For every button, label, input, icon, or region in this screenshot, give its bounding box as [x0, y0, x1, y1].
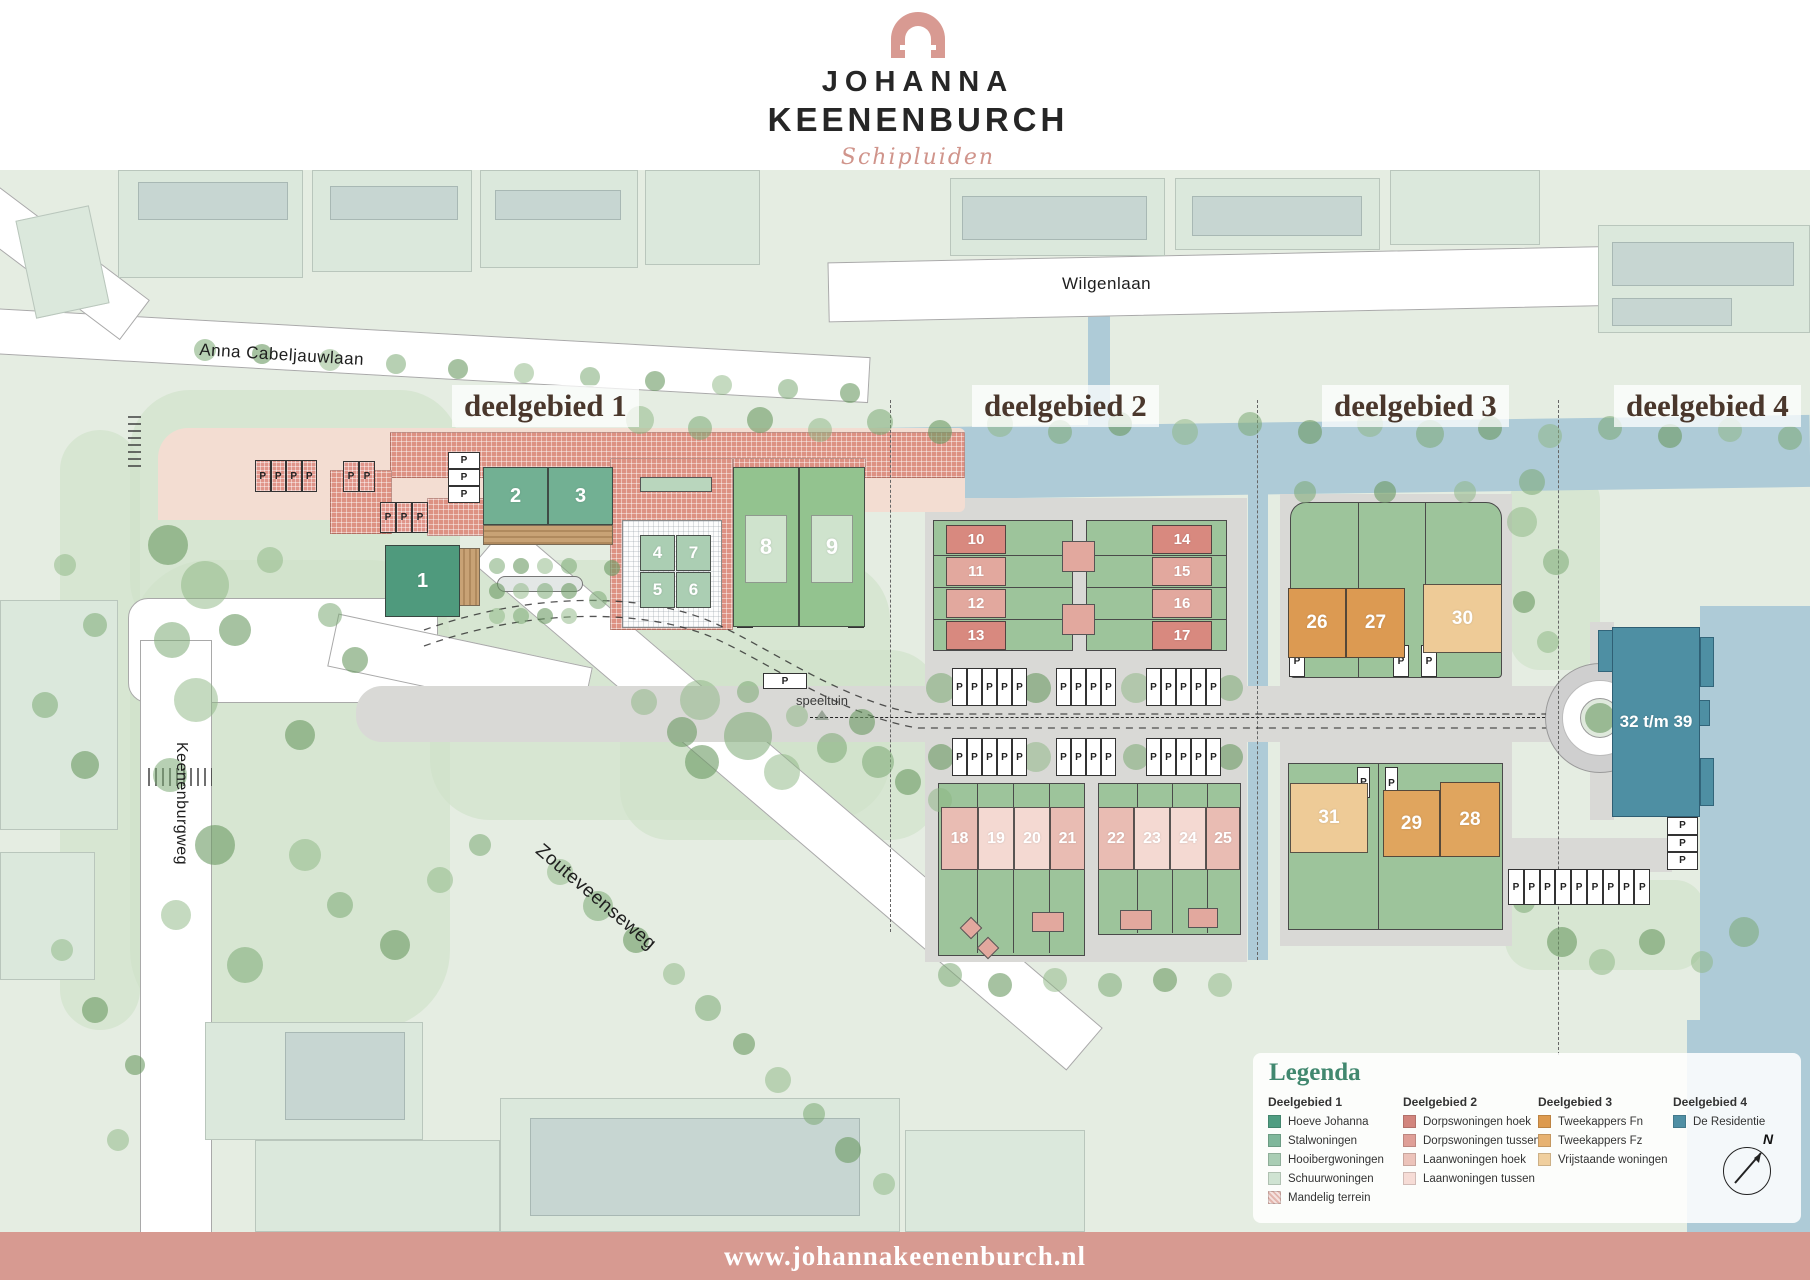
arch-icon [891, 8, 945, 58]
brand-subtitle: Schipluiden [668, 145, 1168, 170]
legend-item-label: Hooibergwoningen [1288, 1154, 1384, 1166]
legend-group-title: Deelgebied 4 [1673, 1095, 1765, 1109]
speeltuin-label: speeltuin [796, 693, 848, 720]
legend-item: Schuurwoningen [1268, 1172, 1384, 1185]
legend-item: Hooibergwoningen [1268, 1153, 1384, 1166]
area-label-deelgebied-3: deelgebied 3 [1322, 385, 1509, 427]
legend-swatch [1403, 1134, 1416, 1147]
legend-item-label: Hoeve Johanna [1288, 1116, 1369, 1128]
site-plan-page: PPPPPPPPPPPPPPPPPPPPPPPPPPPPPPPPPPPPPPPP… [0, 0, 1810, 1280]
legend-item-label: Schuurwoningen [1288, 1173, 1374, 1185]
area-label-deelgebied-1: deelgebied 1 [452, 385, 639, 427]
brand-title-line1: JOHANNA [668, 66, 1168, 99]
legend-item: Vrijstaande woningen [1538, 1153, 1668, 1166]
area-label-deelgebied-2: deelgebied 2 [972, 385, 1159, 427]
compass-needle-icon [1721, 1131, 1791, 1201]
legend-swatch [1403, 1153, 1416, 1166]
legend-swatch [1403, 1172, 1416, 1185]
legend-swatch [1673, 1115, 1686, 1128]
legend-item: Dorpswoningen tussen [1403, 1134, 1540, 1147]
legend-group-deelgebied-4: Deelgebied 4De Residentie [1673, 1095, 1765, 1134]
brand-title-line2: KEENENBURCH [668, 101, 1168, 139]
legend-item-label: Dorpswoningen hoek [1423, 1116, 1531, 1128]
legend-swatch [1268, 1191, 1281, 1204]
legend-panel: Legenda Deelgebied 1Hoeve JohannaStalwon… [1253, 1053, 1801, 1223]
compass: N [1721, 1131, 1791, 1201]
legend-group-title: Deelgebied 2 [1403, 1095, 1540, 1109]
legend-title: Legenda [1269, 1059, 1361, 1087]
legend-swatch [1268, 1153, 1281, 1166]
legend-item-label: Tweekappers Fz [1558, 1135, 1642, 1147]
legend-item: Tweekappers Fn [1538, 1115, 1668, 1128]
legend-item-label: Dorpswoningen tussen [1423, 1135, 1540, 1147]
legend-item: Stalwoningen [1268, 1134, 1384, 1147]
legend-item: Laanwoningen tussen [1403, 1172, 1540, 1185]
legend-item: De Residentie [1673, 1115, 1765, 1128]
legend-item-label: Vrijstaande woningen [1558, 1154, 1668, 1166]
legend-group-title: Deelgebied 1 [1268, 1095, 1384, 1109]
legend-swatch [1268, 1115, 1281, 1128]
legend-item-label: Stalwoningen [1288, 1135, 1357, 1147]
legend-item: Mandelig terrein [1268, 1191, 1384, 1204]
legend-item-label: Laanwoningen hoek [1423, 1154, 1526, 1166]
legend-item-label: De Residentie [1693, 1116, 1765, 1128]
area-label-deelgebied-4: deelgebied 4 [1614, 385, 1801, 427]
legend-item: Hoeve Johanna [1268, 1115, 1384, 1128]
header-bar: JOHANNA KEENENBURCH Schipluiden [0, 0, 1810, 170]
playground-icon [815, 710, 829, 720]
legend-group-deelgebied-1: Deelgebied 1Hoeve JohannaStalwoningenHoo… [1268, 1095, 1384, 1210]
legend-swatch [1538, 1134, 1551, 1147]
legend-item-label: Mandelig terrein [1288, 1192, 1370, 1204]
legend-swatch [1538, 1153, 1551, 1166]
legend-swatch [1403, 1115, 1416, 1128]
legend-item: Tweekappers Fz [1538, 1134, 1668, 1147]
legend-item: Laanwoningen hoek [1403, 1153, 1540, 1166]
legend-swatch [1268, 1172, 1281, 1185]
brand-logo: JOHANNA KEENENBURCH Schipluiden [668, 8, 1168, 170]
legend-item-label: Laanwoningen tussen [1423, 1173, 1535, 1185]
legend-item-label: Tweekappers Fn [1558, 1116, 1643, 1128]
footer-bar: www.johannakeenenburch.nl [0, 1232, 1810, 1280]
website-url[interactable]: www.johannakeenenburch.nl [724, 1241, 1086, 1272]
legend-group-title: Deelgebied 3 [1538, 1095, 1668, 1109]
legend-group-deelgebied-2: Deelgebied 2Dorpswoningen hoekDorpswonin… [1403, 1095, 1540, 1191]
legend-group-deelgebied-3: Deelgebied 3Tweekappers FnTweekappers Fz… [1538, 1095, 1668, 1172]
legend-item: Dorpswoningen hoek [1403, 1115, 1540, 1128]
legend-swatch [1268, 1134, 1281, 1147]
legend-swatch [1538, 1115, 1551, 1128]
